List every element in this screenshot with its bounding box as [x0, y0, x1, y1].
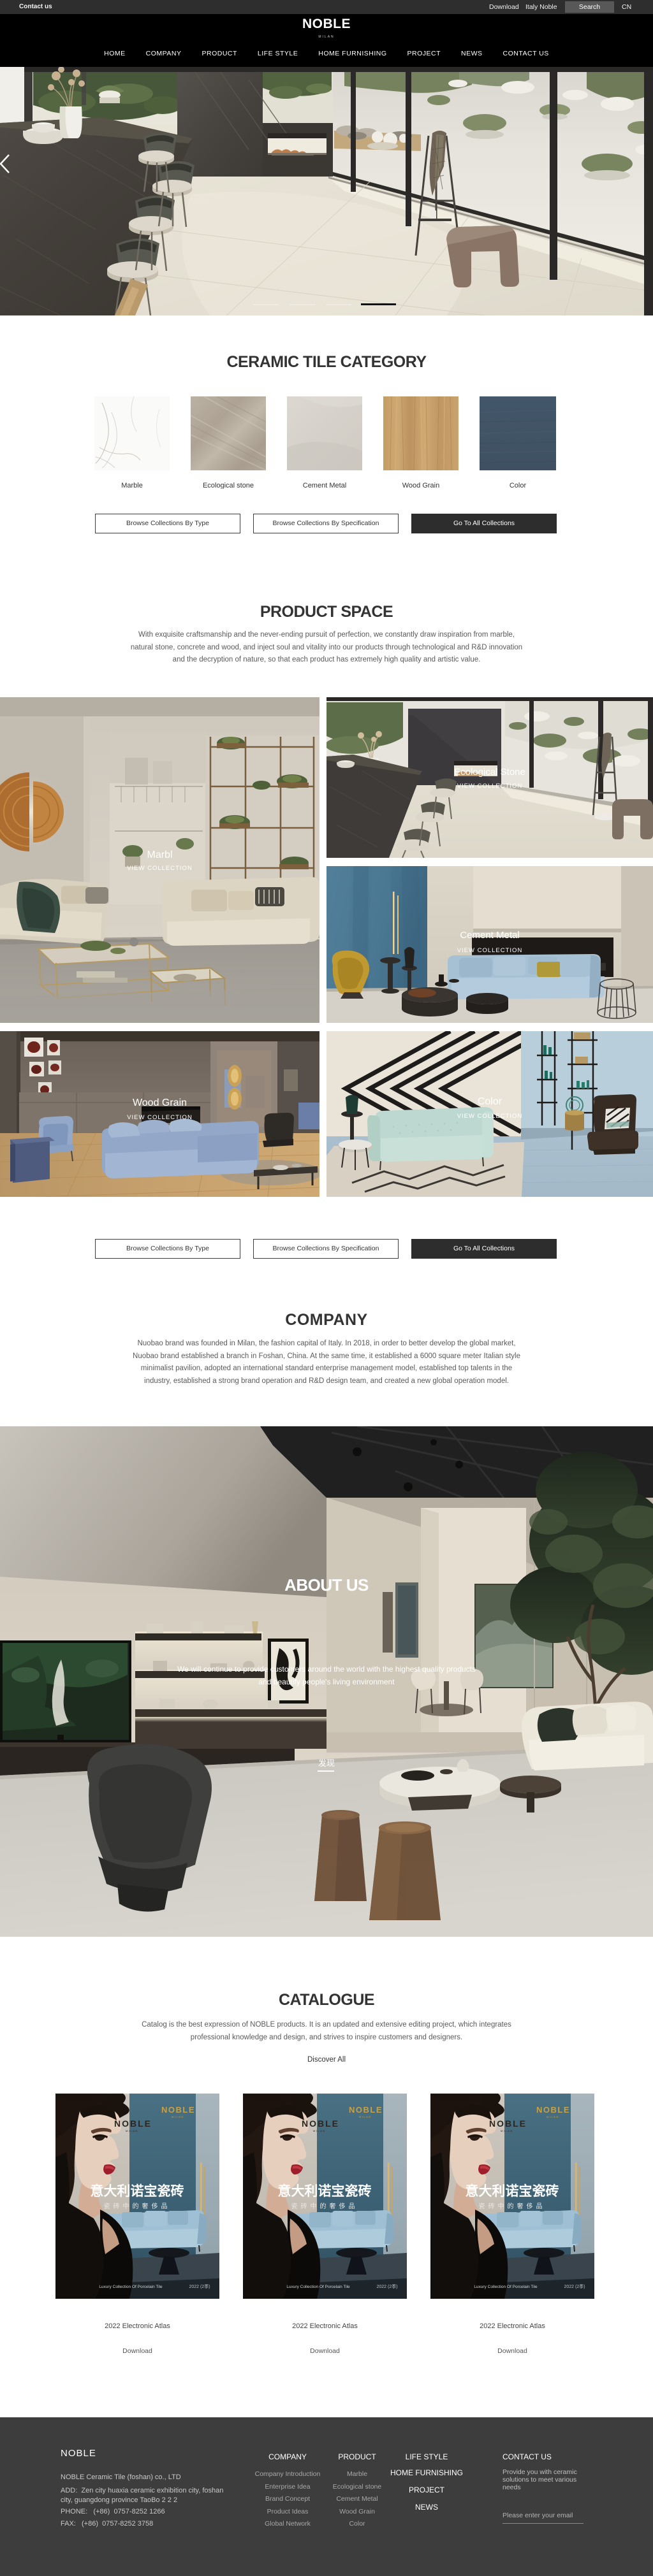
svg-text:MILAN: MILAN: [126, 2129, 138, 2132]
svg-text:Color: Color: [510, 482, 527, 489]
svg-text:Luxury Collection Of Porcelain: Luxury Collection Of Porcelain Tile: [286, 2285, 350, 2289]
svg-text:意大利诺宝瓷砖: 意大利诺宝瓷砖: [466, 2183, 559, 2199]
svg-text:瓷砖中的奢侈品: 瓷砖中的奢侈品: [479, 2202, 546, 2210]
svg-text:NOBLE: NOBLE: [161, 2105, 195, 2115]
svg-text:2022 (2季): 2022 (2季): [189, 2283, 210, 2289]
svg-text:2022 (2季): 2022 (2季): [376, 2283, 397, 2289]
svg-text:Luxury Collection Of Porcelain: Luxury Collection Of Porcelain Tile: [99, 2285, 163, 2289]
svg-text:Ecological stone: Ecological stone: [203, 482, 254, 489]
svg-text:MILAN: MILAN: [172, 2115, 184, 2118]
svg-text:MILAN: MILAN: [359, 2115, 372, 2118]
svg-text:Luxury Collection Of Porcelain: Luxury Collection Of Porcelain Tile: [474, 2285, 538, 2289]
svg-text:MILAN: MILAN: [501, 2129, 513, 2132]
svg-text:NOBLE: NOBLE: [302, 2118, 339, 2129]
svg-text:NOBLE: NOBLE: [536, 2105, 570, 2115]
svg-text:Wood Grain: Wood Grain: [402, 482, 440, 489]
svg-text:瓷砖中的奢侈品: 瓷砖中的奢侈品: [291, 2202, 358, 2210]
svg-text:MILAN: MILAN: [547, 2115, 559, 2118]
svg-text:NOBLE: NOBLE: [489, 2118, 527, 2129]
svg-text:2022 (2季): 2022 (2季): [564, 2283, 585, 2289]
svg-text:瓷砖中的奢侈品: 瓷砖中的奢侈品: [104, 2202, 171, 2210]
svg-text:Cement Metal: Cement Metal: [303, 482, 346, 489]
svg-text:NOBLE: NOBLE: [349, 2105, 383, 2115]
svg-text:Marble: Marble: [121, 482, 143, 489]
svg-text:意大利诺宝瓷砖: 意大利诺宝瓷砖: [278, 2183, 372, 2199]
svg-text:NOBLE: NOBLE: [114, 2118, 152, 2129]
svg-text:意大利诺宝瓷砖: 意大利诺宝瓷砖: [91, 2183, 184, 2199]
svg-text:MILAN: MILAN: [313, 2129, 326, 2132]
